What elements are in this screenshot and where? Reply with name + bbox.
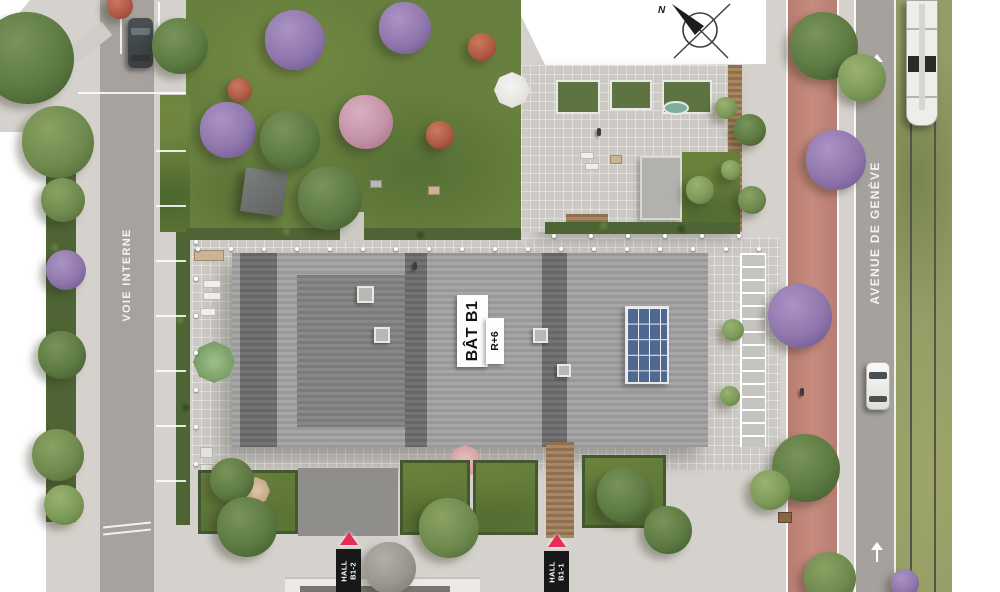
bollard bbox=[625, 247, 629, 251]
bollard bbox=[196, 247, 200, 251]
tree bbox=[597, 467, 653, 523]
bollard bbox=[658, 247, 662, 251]
tree bbox=[768, 284, 832, 348]
tree bbox=[217, 497, 277, 557]
tree bbox=[838, 54, 886, 102]
bollard bbox=[262, 247, 266, 251]
compass-north-icon: N bbox=[650, 0, 760, 80]
tree bbox=[364, 542, 416, 592]
tree bbox=[468, 33, 496, 61]
tree bbox=[339, 95, 393, 149]
tree bbox=[734, 114, 766, 146]
person-figure bbox=[800, 388, 804, 396]
bollard bbox=[194, 425, 198, 429]
tree bbox=[200, 102, 256, 158]
tree bbox=[379, 2, 431, 54]
tree bbox=[686, 176, 714, 204]
tree bbox=[720, 386, 740, 406]
tree bbox=[265, 10, 325, 70]
bollard bbox=[194, 314, 198, 318]
bollard bbox=[427, 247, 431, 251]
tree bbox=[891, 569, 919, 592]
bollard bbox=[663, 234, 667, 238]
tree bbox=[22, 106, 94, 178]
tree bbox=[32, 429, 84, 481]
svg-text:N: N bbox=[658, 5, 666, 16]
hall-b1-1-marker[interactable]: HALLB1-1 bbox=[544, 551, 569, 592]
bollard bbox=[361, 247, 365, 251]
bollard bbox=[757, 247, 761, 251]
tree bbox=[426, 121, 454, 149]
tree bbox=[228, 78, 252, 102]
tree bbox=[804, 552, 856, 592]
building-label[interactable]: BÂT B1 bbox=[457, 295, 488, 367]
bollard bbox=[626, 234, 630, 238]
tree bbox=[806, 130, 866, 190]
bollard bbox=[194, 351, 198, 355]
tree bbox=[46, 250, 86, 290]
bollard bbox=[592, 247, 596, 251]
tree bbox=[721, 160, 741, 180]
bollard bbox=[700, 234, 704, 238]
tree bbox=[44, 485, 84, 525]
tree bbox=[298, 166, 362, 230]
tree bbox=[260, 110, 320, 170]
tree bbox=[644, 506, 692, 554]
tree bbox=[0, 12, 74, 104]
site-plan: VOIE INTERNE AVENUE DE GENÈVE BÂT B1 R+6… bbox=[0, 0, 1000, 592]
bollard bbox=[328, 247, 332, 251]
bollard bbox=[229, 247, 233, 251]
scenery-layer bbox=[0, 0, 1000, 592]
bollard bbox=[526, 247, 530, 251]
tree bbox=[210, 458, 254, 502]
tree bbox=[715, 97, 737, 119]
bollard bbox=[194, 462, 198, 466]
person-figure bbox=[413, 262, 417, 270]
bollard bbox=[493, 247, 497, 251]
hall-b1-2-marker[interactable]: HALLB1-2 bbox=[336, 549, 361, 592]
tree bbox=[750, 470, 790, 510]
tree bbox=[107, 0, 133, 19]
bollard bbox=[394, 247, 398, 251]
bollard bbox=[724, 247, 728, 251]
tree bbox=[41, 178, 85, 222]
person-figure bbox=[597, 128, 601, 136]
bollard bbox=[552, 234, 556, 238]
tree bbox=[722, 319, 744, 341]
tree bbox=[152, 18, 208, 74]
bollard bbox=[460, 247, 464, 251]
bollard bbox=[559, 247, 563, 251]
entrance-arrow-icon bbox=[340, 532, 358, 545]
bollard bbox=[295, 247, 299, 251]
bollard bbox=[737, 234, 741, 238]
tree bbox=[738, 186, 766, 214]
bollard bbox=[589, 234, 593, 238]
tree bbox=[38, 331, 86, 379]
entrance-arrow-icon bbox=[548, 534, 566, 547]
bollard bbox=[194, 388, 198, 392]
bollard bbox=[194, 240, 198, 244]
building-floors-label: R+6 bbox=[486, 318, 504, 364]
bollard bbox=[691, 247, 695, 251]
tree bbox=[419, 498, 479, 558]
bollard bbox=[194, 277, 198, 281]
